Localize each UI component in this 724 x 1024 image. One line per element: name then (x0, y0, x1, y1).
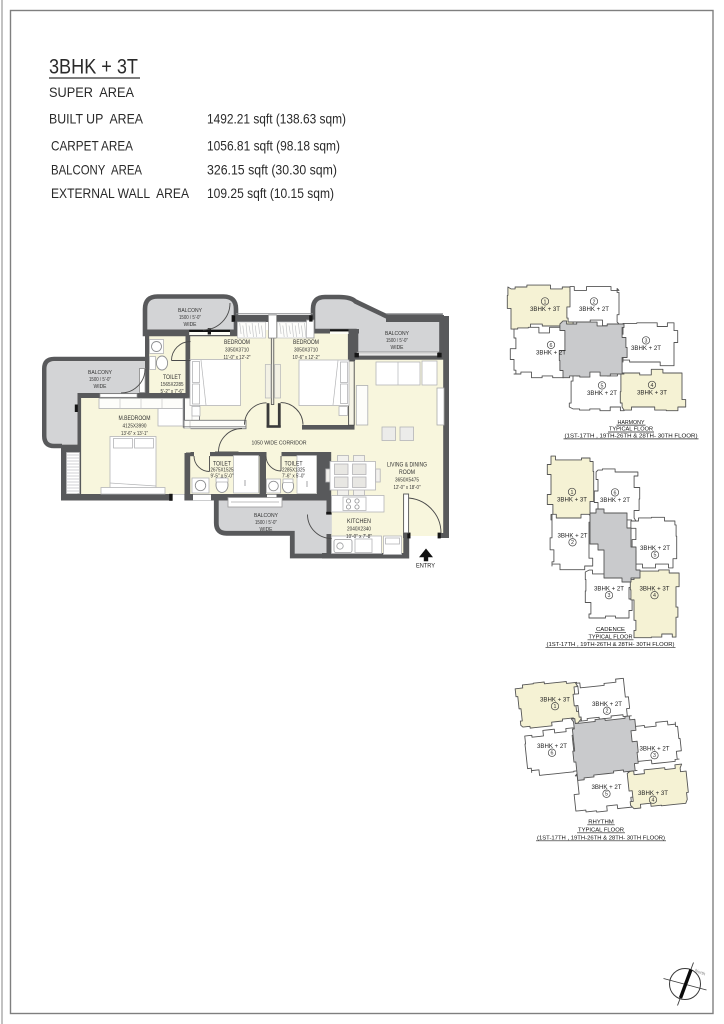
svg-text:1: 1 (571, 490, 574, 496)
svg-text:WIDE: WIDE (184, 322, 197, 328)
svg-text:6: 6 (550, 343, 553, 349)
svg-text:1500 / 5'-0": 1500 / 5'-0" (386, 338, 408, 344)
svg-text:7'-6" x 5'-0": 7'-6" x 5'-0" (282, 474, 305, 480)
svg-text:M.BEDROOM: M.BEDROOM (119, 415, 151, 422)
svg-text:326.15 sqft (30.30 sqm): 326.15 sqft (30.30 sqm) (207, 162, 337, 178)
svg-text:3BHK + 2T: 3BHK + 2T (536, 350, 566, 357)
svg-text:4125X3990: 4125X3990 (123, 424, 147, 430)
svg-text:1500 / 5'-0": 1500 / 5'-0" (255, 520, 277, 526)
svg-text:3BHK + 3T: 3BHK + 3T (530, 306, 560, 313)
svg-text:4: 4 (652, 798, 655, 804)
svg-text:EXTERNAL WALL AREA: EXTERNAL WALL AREA (51, 185, 190, 201)
svg-text:LIVING & DINING: LIVING & DINING (387, 462, 427, 469)
svg-text:13'-6" x 13'-1": 13'-6" x 13'-1" (121, 431, 148, 437)
svg-text:1492.21 sqft (138.63 sqm): 1492.21 sqft (138.63 sqm) (207, 111, 346, 127)
svg-text:3BHK + 2T: 3BHK + 2T (579, 306, 609, 313)
svg-text:6: 6 (614, 490, 617, 496)
svg-text:3650X5475: 3650X5475 (395, 478, 419, 484)
svg-text:2: 2 (571, 540, 574, 546)
svg-text:5'-2" x 7'-6": 5'-2" x 7'-6" (161, 389, 184, 395)
svg-text:3BHK + 2T: 3BHK + 2T (631, 345, 661, 352)
svg-text:1500 / 5'-0": 1500 / 5'-0" (89, 377, 111, 383)
svg-text:3350X3710: 3350X3710 (225, 348, 249, 354)
svg-text:TOILET: TOILET (163, 375, 181, 381)
svg-text:WIDE: WIDE (391, 345, 404, 351)
svg-text:BALCONY: BALCONY (254, 513, 278, 519)
svg-text:1565X2285: 1565X2285 (161, 382, 184, 388)
svg-text:109.25 sqft (10.15 sqm): 109.25 sqft (10.15 sqm) (207, 185, 334, 201)
svg-text:5: 5 (605, 792, 608, 798)
svg-text:ROOM: ROOM (399, 469, 415, 476)
svg-text:3BHK + 3T: 3BHK + 3T (49, 56, 138, 79)
svg-text:BALCONY: BALCONY (88, 370, 112, 376)
svg-text:CARPET AREA: CARPET AREA (51, 138, 134, 154)
svg-text:BEDROOM: BEDROOM (224, 339, 250, 346)
svg-text:3: 3 (653, 753, 656, 759)
svg-text:3BHK + 3T: 3BHK + 3T (557, 497, 587, 504)
svg-text:3: 3 (645, 338, 648, 344)
svg-text:2: 2 (593, 299, 596, 305)
svg-text:3050X3710: 3050X3710 (294, 348, 318, 354)
svg-text:12'-0" x 18'-0": 12'-0" x 18'-0" (394, 485, 421, 491)
svg-text:2: 2 (606, 709, 609, 715)
svg-text:11'-0" x 12'-2": 11'-0" x 12'-2" (224, 355, 251, 361)
svg-text:10'-0" x 7'-8": 10'-0" x 7'-8" (346, 534, 372, 540)
svg-text:North: North (694, 968, 707, 977)
svg-text:9'-5" x 5'-0": 9'-5" x 5'-0" (211, 474, 234, 480)
svg-text:BUILT UP AREA: BUILT UP AREA (49, 111, 144, 127)
svg-text:3BHK + 2T: 3BHK + 2T (600, 497, 630, 504)
svg-text:BALCONY AREA: BALCONY AREA (51, 162, 143, 178)
svg-text:2040X2340: 2040X2340 (347, 527, 371, 533)
svg-text:1056.81 sqft (98.18 sqm): 1056.81 sqft (98.18 sqm) (207, 138, 340, 154)
svg-text:3: 3 (608, 593, 611, 599)
svg-text:6: 6 (551, 751, 554, 757)
svg-text:4: 4 (651, 383, 654, 389)
svg-text:BALCONY: BALCONY (385, 331, 409, 337)
svg-text:10'-6" x 12'-2": 10'-6" x 12'-2" (293, 355, 320, 361)
svg-text:3BHK + 3T: 3BHK + 3T (637, 390, 667, 397)
svg-text:WIDE: WIDE (260, 527, 273, 533)
svg-text:1: 1 (544, 299, 547, 305)
svg-text:5: 5 (654, 553, 657, 559)
svg-text:SUPER AREA: SUPER AREA (49, 84, 135, 100)
svg-text:1050 WIDE CORRIDOR: 1050 WIDE CORRIDOR (252, 441, 307, 447)
svg-text:5: 5 (601, 383, 604, 389)
svg-text:BEDROOM: BEDROOM (293, 339, 319, 346)
svg-text:1500 / 5'-0": 1500 / 5'-0" (179, 315, 201, 321)
svg-text:4: 4 (653, 593, 656, 599)
svg-text:WIDE: WIDE (94, 384, 107, 390)
svg-text:1: 1 (554, 704, 557, 710)
svg-text:BALCONY: BALCONY (178, 308, 202, 314)
svg-text:KITCHEN: KITCHEN (347, 518, 371, 525)
svg-text:3BHK + 2T: 3BHK + 2T (587, 390, 617, 397)
svg-text:ENTRY: ENTRY (416, 563, 435, 570)
